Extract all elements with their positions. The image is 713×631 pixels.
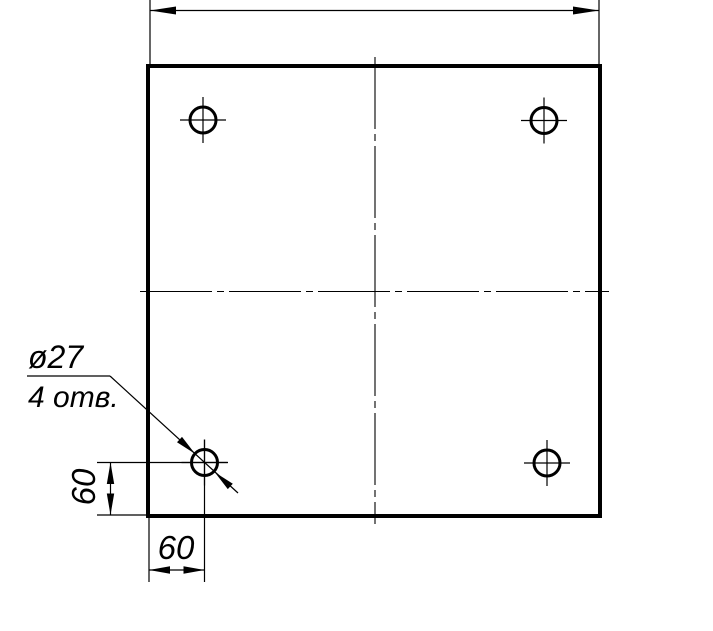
dimension-value: 60 <box>158 529 195 566</box>
arrowhead-left-icon <box>150 7 176 15</box>
arrowhead-right-icon <box>184 566 205 573</box>
horizontal-dimension-60: 60 <box>149 440 205 583</box>
hole <box>524 440 570 486</box>
dimension-value: 60 <box>65 468 102 505</box>
hole <box>180 97 226 143</box>
engineering-drawing: 60 60 ø27 4 отв. <box>0 0 713 631</box>
arrowhead-upper-icon <box>177 437 195 454</box>
hole-count-label: 4 отв. <box>28 381 119 414</box>
top-dimension <box>150 0 599 64</box>
diameter-callout: ø27 4 отв. <box>27 339 238 493</box>
hole <box>521 98 567 144</box>
arrowhead-up-icon <box>107 463 114 485</box>
arrowhead-lower-icon <box>215 472 233 489</box>
arrowhead-right-icon <box>573 7 599 15</box>
arrowhead-left-icon <box>149 566 170 573</box>
arrowhead-down-icon <box>107 494 114 516</box>
hole-diameter-label: ø27 <box>28 339 84 375</box>
